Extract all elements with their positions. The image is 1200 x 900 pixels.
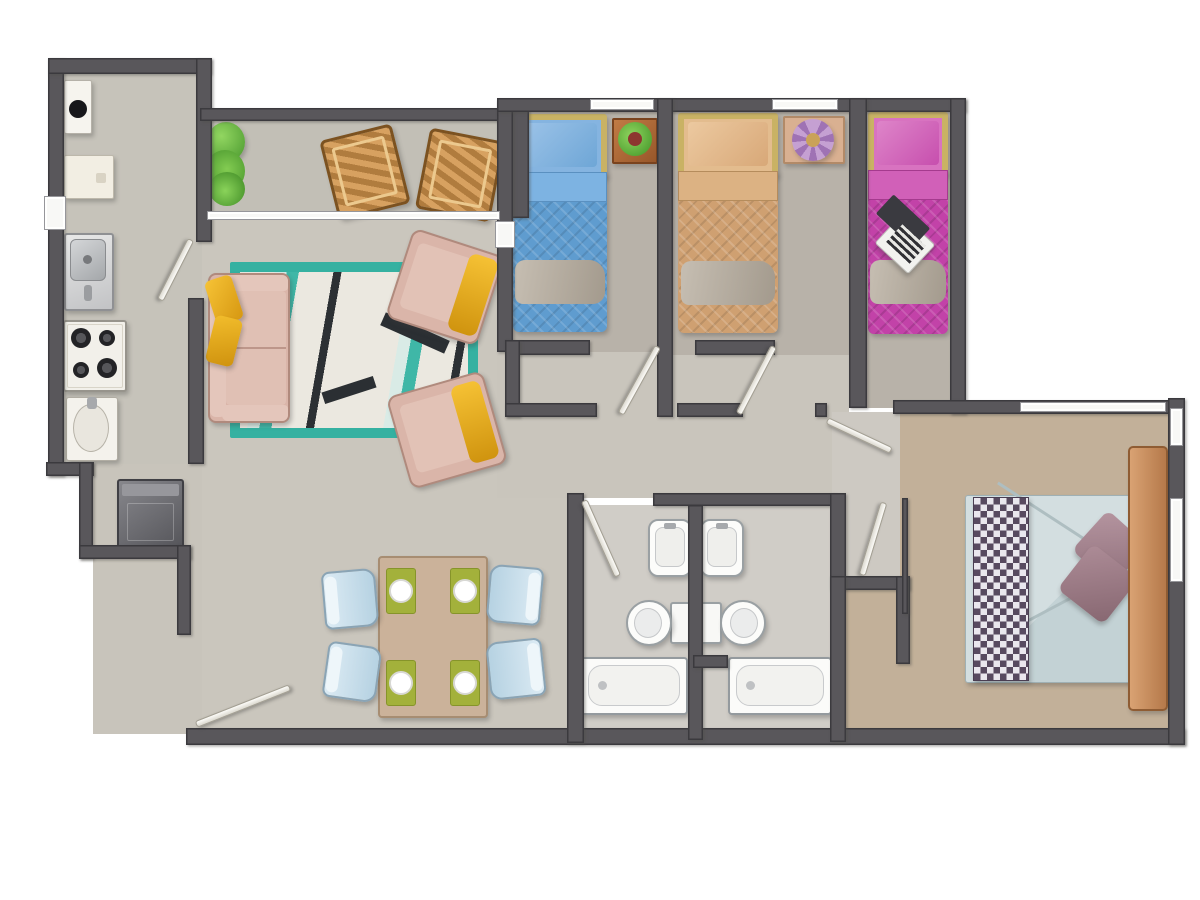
kitchen-counter-part-1 [96, 173, 106, 183]
wall-segment [657, 98, 673, 417]
wall-segment [188, 298, 204, 464]
wall-segment [48, 58, 64, 476]
toilet-2-part-0 [700, 602, 722, 644]
bedroom-1-side-window [495, 221, 515, 248]
bathtub-2 [728, 657, 832, 715]
dining-chair-2 [486, 564, 545, 626]
balcony-plant-part-2 [209, 172, 245, 206]
patio-chair-2-part-1 [428, 139, 492, 208]
kitchen-sink-part-2 [83, 255, 92, 264]
kitchen-sink [64, 233, 114, 311]
water-heater-part-1 [69, 100, 87, 118]
bed-single-tan-part-4 [681, 261, 775, 305]
stove-part-3 [99, 330, 115, 346]
wall-segment [830, 576, 846, 742]
master-bed [965, 495, 1132, 683]
bedrooms-top-window-2 [772, 99, 838, 110]
dining-table-part-5 [389, 579, 413, 603]
wall-segment [950, 98, 966, 414]
dining-table-part-8 [453, 671, 477, 695]
wall-segment [497, 98, 966, 112]
wall-segment [695, 340, 775, 355]
bathroom-sink-1-part-1 [655, 527, 685, 567]
bed-single-blue-part-2 [523, 123, 597, 167]
wall-segment [849, 98, 867, 408]
washing-machine [117, 479, 184, 550]
stove-part-5 [97, 358, 117, 378]
floor-plan [0, 0, 1200, 900]
wall-segment [653, 493, 835, 506]
wall-segment [693, 655, 728, 668]
wall-segment [815, 403, 827, 417]
master-bed-headboard-part-0 [1128, 446, 1168, 711]
dining-table-part-7 [389, 671, 413, 695]
bed-single-magenta-part-3 [868, 170, 948, 200]
toilet-2 [700, 599, 766, 647]
laundry-sink-part-1 [73, 404, 109, 452]
wall-segment [48, 58, 211, 74]
bathroom-sink-1 [648, 519, 692, 577]
kitchen-counter [64, 155, 114, 199]
stove-part-4 [73, 362, 89, 378]
bed-single-blue-part-4 [515, 260, 605, 304]
wall-segment [830, 493, 846, 588]
wall-segment [688, 505, 703, 740]
sofa [208, 273, 290, 423]
stove [63, 320, 127, 392]
wall-segment [505, 403, 597, 417]
wall-segment [186, 728, 1185, 745]
laundry-sink [66, 397, 118, 461]
wall-segment [200, 108, 502, 121]
bed-single-tan-part-3 [678, 171, 778, 201]
bedrooms-top-window-1 [590, 99, 654, 110]
toilet-1-part-2 [634, 608, 662, 638]
nightstand-2-part-2 [806, 133, 820, 147]
wall-segment [902, 498, 908, 614]
bathtub-1 [580, 657, 688, 715]
bed-single-magenta [868, 112, 948, 334]
bathroom-sink-1-part-2 [664, 523, 676, 529]
water-heater [64, 80, 92, 134]
master-bed-headboard [1128, 446, 1168, 711]
toilet-1 [626, 599, 692, 647]
bed-single-magenta-part-2 [877, 121, 939, 165]
master-top-window [1020, 402, 1166, 412]
dining-table-part-6 [453, 579, 477, 603]
nightstand-1-part-2 [628, 132, 642, 146]
washing-machine-part-1 [122, 484, 179, 496]
bathtub-1-part-2 [598, 681, 607, 690]
floor-hallway [497, 350, 849, 498]
kitchen-counter-part-0 [64, 155, 114, 199]
wall-segment [79, 545, 191, 559]
kitchen-sink-part-3 [84, 285, 92, 301]
dining-chair-4 [485, 637, 547, 701]
dining-table [378, 556, 488, 718]
bathroom-sink-2-part-1 [707, 527, 737, 567]
sofa-part-3 [222, 405, 288, 421]
patio-chair-2 [415, 128, 505, 223]
bathroom-sink-2-part-2 [716, 523, 728, 529]
bed-single-tan-part-2 [688, 122, 768, 166]
balcony-sliding-door [207, 211, 500, 220]
washing-machine-part-2 [127, 503, 174, 541]
bathtub-2-part-2 [746, 681, 755, 690]
master-bed-part-3 [973, 497, 1029, 681]
dining-chair-1 [321, 568, 380, 630]
nightstand-1 [612, 118, 658, 164]
bathroom-sink-2 [700, 519, 744, 577]
wall-segment [177, 545, 191, 635]
wall-segment [567, 493, 584, 743]
master-right-window-1 [1170, 408, 1183, 446]
laundry-sink-part-2 [87, 397, 97, 409]
stove-part-2 [71, 328, 91, 348]
dining-chair-3 [321, 641, 382, 704]
kitchen-window [44, 196, 66, 230]
master-right-window-2 [1170, 498, 1183, 582]
toilet-2-part-2 [730, 608, 758, 638]
wall-segment [677, 403, 743, 417]
nightstand-2 [783, 116, 845, 164]
bed-single-tan [678, 113, 778, 333]
